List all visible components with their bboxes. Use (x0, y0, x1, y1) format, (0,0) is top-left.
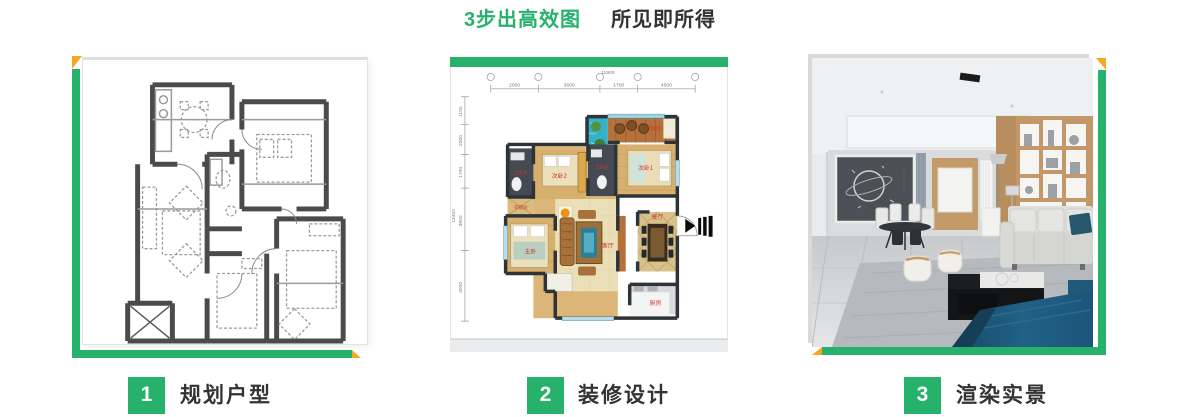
room-label: 次卧2 (552, 172, 567, 180)
panel-cad-floorplan (72, 55, 372, 360)
room-label: 卫生间 (514, 169, 528, 176)
cad-floorplan-image (83, 60, 367, 344)
room-label: 客厅 (602, 242, 614, 250)
green-frame-left (72, 69, 80, 358)
corner-accent-icon (72, 56, 82, 69)
svg-text:3000: 3000 (458, 282, 464, 293)
entry-door-icon (677, 216, 712, 237)
svg-text:3600: 3600 (564, 82, 575, 88)
panel-color-floorplan: 2000 3600 1700 4500 11900 1100 2300 1700… (450, 57, 728, 352)
step-1-label: 规划户型 (180, 379, 272, 409)
color-floorplan-card: 2000 3600 1700 4500 11900 1100 2300 1700… (450, 67, 728, 339)
step-1-badge: 1 (128, 377, 165, 414)
room-label: 厨房 (650, 299, 662, 307)
panel-render-photo (812, 58, 1106, 356)
room-label: 阳台 (650, 125, 662, 133)
svg-text:2000: 2000 (509, 82, 520, 88)
color-floorplan-image: 2000 3600 1700 4500 11900 1100 2300 1700… (451, 67, 727, 337)
room-label: 主卧 (524, 248, 536, 256)
card-footer-strip (450, 339, 728, 352)
svg-text:2300: 2300 (458, 135, 464, 146)
cad-elevator-x (131, 306, 170, 338)
render-photo-card (812, 58, 1093, 347)
title-highlight: 3步出高效图 (464, 9, 581, 31)
page-title: 3步出高效图所见即所得 (0, 3, 1180, 32)
marketing-section: 3步出高效图所见即所得 (0, 0, 1180, 406)
svg-text:4500: 4500 (661, 82, 672, 88)
green-header-bar (450, 57, 728, 67)
step-2-badge: 2 (527, 377, 564, 414)
svg-text:1100: 1100 (458, 106, 464, 117)
green-frame-right (1098, 70, 1106, 355)
step-2-label: 装修设计 (578, 379, 670, 409)
svg-text:1700: 1700 (613, 82, 624, 88)
room-label: 衣帽间 (514, 204, 528, 211)
title-rest: 所见即所得 (611, 9, 716, 31)
room-label: 卫生间 (595, 163, 609, 170)
room-label: 次卧1 (638, 164, 654, 172)
svg-text:3600: 3600 (458, 215, 464, 226)
corner-accent-icon (812, 347, 822, 355)
svg-text:12400: 12400 (451, 209, 457, 223)
step-3-badge: 3 (904, 377, 941, 414)
room-label: 餐厅 (652, 213, 664, 221)
step-3-label: 渲染实景 (956, 379, 1048, 409)
corner-accent-icon (1096, 58, 1106, 70)
sofa (1000, 206, 1093, 270)
green-frame-bottom (822, 347, 1106, 355)
render-photo-image (812, 58, 1093, 347)
green-frame-bottom (72, 350, 352, 358)
corner-accent-icon (352, 350, 361, 358)
cad-floorplan-card (82, 57, 368, 345)
chalkboard-wall (836, 156, 914, 222)
svg-text:1700: 1700 (458, 166, 464, 177)
svg-text:11900: 11900 (601, 70, 615, 76)
